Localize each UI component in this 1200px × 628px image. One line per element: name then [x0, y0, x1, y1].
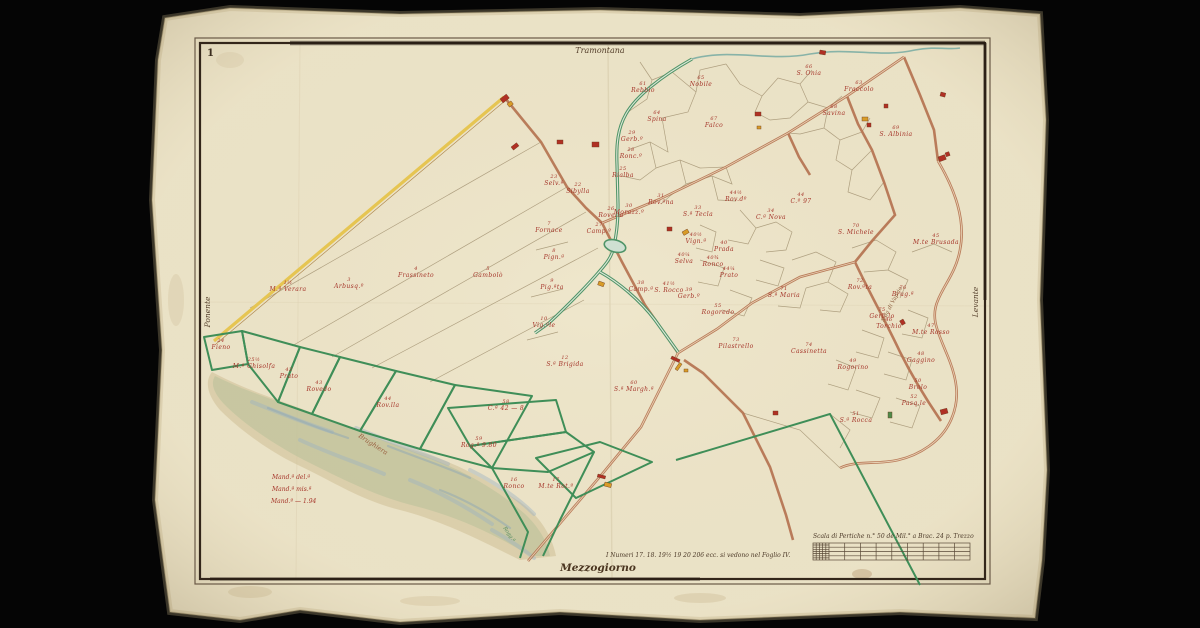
parcel-name: Rov.ªta: [847, 284, 872, 291]
parcel-name: S.ª Maria: [768, 292, 800, 299]
parcel-name: Ronc.º: [619, 153, 642, 160]
parcel-name: S.ª Tecla: [683, 211, 713, 218]
cardinal-west: Ponente: [203, 296, 212, 328]
parcel-number: 41½: [662, 280, 675, 287]
parcel-name: S.ª Rocca: [840, 417, 873, 424]
parcel-number: 40¾: [706, 254, 719, 261]
parcel-name: Rogorino: [836, 364, 868, 371]
parcel-name: Gerb.º: [621, 136, 643, 143]
parcel-name: Nobile: [689, 81, 713, 88]
parcel-name: Rialba: [611, 172, 634, 179]
parcel-name: Brolo: [908, 384, 927, 391]
parcel-name: Savina: [823, 110, 846, 117]
parcel-number: 40½: [689, 231, 702, 238]
parcel-name: Vign.ª: [685, 238, 706, 245]
parcel-name: Arbusq.º: [333, 283, 364, 290]
parcel-name: Falco: [704, 122, 723, 129]
parcel-name: C.ª 42 — 8: [488, 405, 524, 412]
building-symbol-red: [819, 50, 826, 55]
parcel-name: Rovedo: [306, 386, 332, 393]
parcel-name: Spina: [647, 116, 666, 123]
parcel-name: Cassinetta: [791, 348, 827, 355]
parcel-name: S.ª Margh.ª: [614, 386, 654, 393]
parcel-name: Pign.ª: [543, 254, 565, 261]
parcel-number: 44¼: [722, 265, 735, 272]
parcel-name: Rov.dº: [724, 196, 747, 203]
parcel-name: Rog.ª 9.80: [460, 442, 497, 449]
parcel-name: Pilastrello: [717, 343, 753, 350]
parcel-name: Ronco: [702, 261, 724, 268]
parcel-name: Gerb.º: [678, 293, 700, 300]
parcel-name: M.ª Verara: [268, 286, 306, 293]
cardinal-east: Levante: [971, 286, 980, 318]
building-symbol-red: [884, 104, 888, 108]
parcel-name: M.te Rot.º: [537, 483, 573, 490]
parcel-name: M.ª Ghisolfa: [232, 363, 276, 370]
parcel-name: M.te Brusada: [912, 239, 959, 246]
scale-bar-title: Scala di Pertiche n.° 50 de Mil.° a Brac…: [813, 533, 974, 540]
parcel-name: S. Albinia: [879, 131, 912, 138]
parcel-name: Vig.ªle: [532, 322, 555, 329]
parcel-number: 1½: [284, 279, 293, 286]
parcel-name: Sibylla: [566, 188, 589, 195]
map-canvas: 1½M.ª Verara3Arbusq.º4Frassineto5Gambolò…: [0, 0, 1200, 628]
footnote: I Numeri 17. 18. 19½ 19 20 206 ecc. si v…: [605, 552, 790, 559]
parcel-name: Ronco: [503, 483, 525, 490]
parcel-name: Morazz.º: [613, 209, 644, 216]
marsh-note: Mand.ª del.ª Mand.ª mis.ª Mand.º — 1.94: [270, 474, 317, 505]
building-symbol-red: [667, 227, 672, 231]
parcel-name: Prato: [279, 373, 299, 380]
parcel-number: 44½: [729, 189, 742, 196]
parcel-name: Camp.º: [587, 228, 612, 235]
building-symbol-yellow: [862, 117, 868, 121]
parcel-name: Fornace: [534, 227, 563, 234]
parcel-name: S. Michele: [838, 229, 874, 236]
parcel-name: Fieno: [210, 344, 230, 351]
parcel-name: S. Onia: [797, 70, 822, 77]
building-symbol-red: [755, 112, 761, 116]
parcel-name: Rebbio: [630, 87, 655, 94]
building-symbol-red: [557, 140, 563, 144]
map-sheet-photo: { "sheet": { "corner_number": "1" }, "ca…: [0, 0, 1200, 628]
building-symbol-red: [592, 142, 599, 147]
parcel-name: C.ª Nova: [756, 214, 786, 221]
parcel-name: M.te Rosso: [911, 329, 950, 336]
parcel-name: Rov.lla: [376, 402, 400, 409]
parcel-name: Camp.ª: [629, 286, 654, 293]
building-symbol-yellow: [684, 369, 688, 372]
parcel-name: Prada: [713, 246, 734, 253]
parcel-name: Pig.ªta: [539, 284, 563, 291]
parcel-name: Rogoredo: [701, 309, 735, 316]
svg-text:Mand.ª del.ª: Mand.ª del.ª: [271, 474, 310, 481]
building-symbol-green: [888, 412, 892, 418]
building-symbol-yellow: [757, 126, 761, 129]
parcel-number: 40¼: [677, 251, 690, 258]
sheet-number: 1: [207, 48, 214, 59]
parcel-name: S.ª Brigida: [546, 361, 583, 368]
cardinal-south: Mezzogiorno: [559, 562, 636, 574]
parcel-name: Torchio: [876, 323, 902, 330]
parcel-name: Gaggino: [907, 357, 935, 364]
svg-text:Mand.ª mis.ª: Mand.ª mis.ª: [271, 486, 312, 493]
parcel-name: Gambolò: [473, 272, 503, 279]
parcel-name: Selva: [675, 258, 694, 265]
parcel-name: Frassineto: [397, 272, 434, 279]
parcel-name: Pasq.le: [901, 400, 926, 407]
parcel-name: C.º 97: [790, 198, 811, 205]
parcel-name: Rov.ªna: [647, 199, 674, 206]
parcel-number: 25½: [247, 356, 260, 363]
svg-text:Mand.º — 1.94: Mand.º — 1.94: [270, 498, 317, 505]
parcel-name: Fraccolo: [843, 86, 874, 93]
building-symbol-red: [867, 123, 871, 127]
cardinal-north: Tramontana: [575, 46, 625, 55]
building-symbol-red: [773, 411, 778, 415]
parcel-name: Selv.ª: [544, 180, 563, 187]
parcel-name: Prato: [719, 272, 739, 279]
